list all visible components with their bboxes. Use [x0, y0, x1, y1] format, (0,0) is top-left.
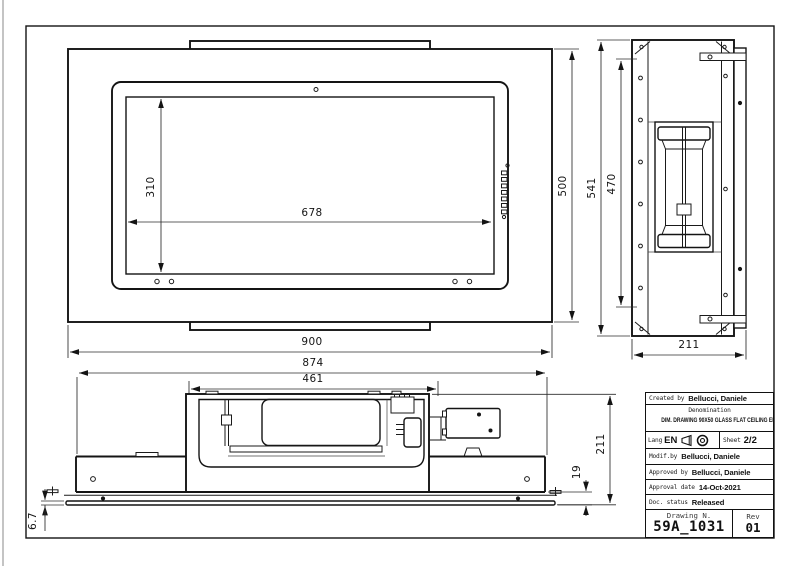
denomination-row: Denomination DIM. DRAWING 90X50 GLASS FL…	[646, 405, 773, 432]
technical-drawing-sheet: 678 310 900 500 541 470 211 874 461 211 …	[0, 0, 800, 566]
dim-glass-width: 678	[301, 207, 322, 219]
dim-side-depth: 211	[678, 339, 699, 351]
sheet-label: Sheet	[723, 437, 741, 444]
created-by-value: Bellucci, Daniele	[688, 394, 747, 403]
sheet-value: 2/2	[744, 435, 757, 446]
dim-panel-width: 900	[301, 336, 322, 348]
approved-row: Approved by Bellucci, Daniele	[646, 465, 773, 480]
section-view	[41, 373, 616, 531]
dim-total-height: 211	[595, 433, 607, 454]
dim-side-holes: 470	[606, 173, 618, 194]
electrical-box	[443, 409, 501, 439]
approved-label: Approved by	[649, 469, 688, 476]
approval-date-row: Approval date 14-Oct-2021	[646, 480, 773, 495]
doc-status-value: Released	[692, 498, 725, 507]
lang-cell: Lang EN	[646, 432, 720, 448]
approval-date-value: 14-Oct-2021	[699, 483, 741, 492]
glass-panel	[66, 501, 555, 505]
rev-cell: Rev 01	[733, 510, 773, 537]
rev-value: 01	[745, 521, 760, 534]
sheet-cell: Sheet 2/2	[720, 432, 773, 448]
denomination-value: DIM. DRAWING 90X50 GLASS FLAT CEILING EM…	[661, 417, 758, 424]
created-by-row: Created by Bellucci, Daniele	[646, 393, 773, 405]
lang-label: Lang	[648, 437, 662, 444]
drawing-number-row: Drawing N. 59A_1031 Rev 01	[646, 510, 773, 537]
dim-panel-height: 500	[557, 175, 569, 196]
drawing-number-value: 59A_1031	[653, 520, 724, 535]
first-angle-projection-icon	[679, 434, 694, 447]
modif-value: Bellucci, Daniele	[681, 452, 740, 461]
lang-value: EN	[664, 435, 677, 446]
drawing-number-cell: Drawing N. 59A_1031	[646, 510, 733, 537]
cable-clamp	[464, 448, 482, 457]
created-by-label: Created by	[649, 395, 684, 402]
front-view	[68, 41, 579, 358]
title-block: Created by Bellucci, Daniele Denominatio…	[645, 392, 774, 538]
lang-sheet-row: Lang EN Sheet 2/2	[646, 432, 773, 449]
dim-glass-thickness: 6.7	[27, 512, 39, 530]
denomination-label: Denomination	[646, 407, 773, 414]
dim-duct-width: 461	[302, 373, 323, 385]
dim-glass-height: 310	[145, 176, 157, 197]
dim-body-height: 19	[571, 465, 583, 479]
projection-view-icon	[696, 434, 709, 447]
dim-section-width: 874	[302, 357, 323, 369]
side-view	[597, 40, 746, 360]
modif-row: Modif.by Bellucci, Daniele	[646, 449, 773, 465]
dim-side-height: 541	[586, 177, 598, 198]
modif-label: Modif.by	[649, 453, 677, 460]
approval-date-label: Approval date	[649, 484, 695, 491]
motor-body	[262, 400, 380, 446]
approved-value: Bellucci, Daniele	[692, 468, 751, 477]
doc-status-row: Doc. status Released	[646, 495, 773, 510]
doc-status-label: Doc. status	[649, 499, 688, 506]
